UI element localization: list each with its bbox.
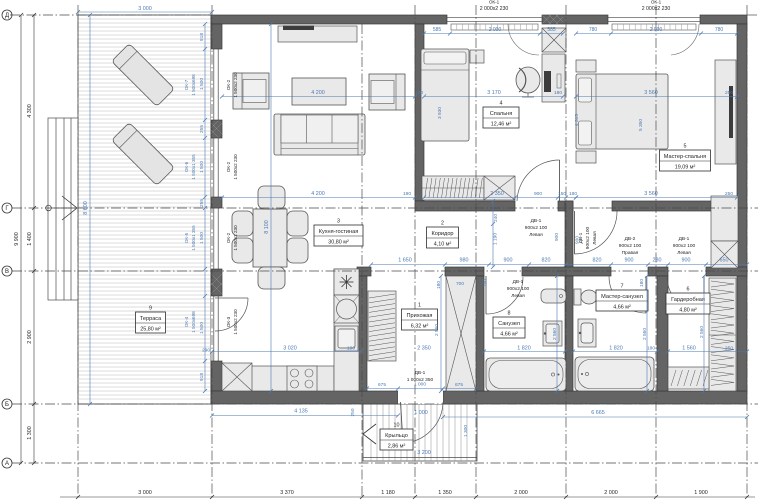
svg-text:7: 7 xyxy=(621,284,624,290)
svg-text:ДВ-1: ДВ-1 xyxy=(531,218,542,224)
svg-text:Левая: Левая xyxy=(592,231,598,245)
svg-text:3 000: 3 000 xyxy=(138,490,152,496)
svg-text:Коридор: Коридор xyxy=(431,231,453,237)
svg-text:1 500х698: 1 500х698 xyxy=(191,311,196,333)
svg-text:4 315: 4 315 xyxy=(574,114,580,126)
svg-text:1 650: 1 650 xyxy=(398,258,412,264)
svg-text:ОК-3: ОК-3 xyxy=(226,316,231,327)
svg-text:1 500: 1 500 xyxy=(199,78,205,90)
svg-text:820: 820 xyxy=(542,258,551,264)
svg-text:9: 9 xyxy=(149,306,152,312)
svg-text:255: 255 xyxy=(199,199,205,207)
svg-text:Правая: Правая xyxy=(622,250,639,256)
svg-text:1 820: 1 820 xyxy=(517,346,531,352)
svg-text:2 000: 2 000 xyxy=(514,490,528,496)
svg-text:1 900: 1 900 xyxy=(694,490,708,496)
svg-text:2 000х2 230: 2 000х2 230 xyxy=(642,6,671,12)
svg-text:3 560: 3 560 xyxy=(644,90,658,96)
svg-text:1 000х2 350: 1 000х2 350 xyxy=(407,377,434,383)
svg-text:1 350: 1 350 xyxy=(438,490,452,496)
svg-text:6: 6 xyxy=(687,287,690,293)
svg-text:2 560: 2 560 xyxy=(434,324,440,336)
svg-text:4 200: 4 200 xyxy=(311,90,325,96)
svg-text:2,86 м²: 2,86 м² xyxy=(388,444,406,450)
svg-text:1 500: 1 500 xyxy=(199,161,205,173)
svg-text:3 930: 3 930 xyxy=(437,107,443,119)
svg-text:1 500х1 355: 1 500х1 355 xyxy=(191,225,196,251)
svg-text:3 020: 3 020 xyxy=(283,346,297,352)
svg-text:900: 900 xyxy=(625,258,634,264)
svg-text:5 350: 5 350 xyxy=(638,119,644,131)
svg-text:ДВ-2: ДВ-2 xyxy=(625,236,636,242)
svg-text:4,66 м²: 4,66 м² xyxy=(613,305,631,311)
svg-text:12,46 м²: 12,46 м² xyxy=(491,122,512,128)
svg-text:ОК-6: ОК-6 xyxy=(184,161,189,172)
svg-text:1 300: 1 300 xyxy=(463,425,469,437)
svg-text:ДВ-1: ДВ-1 xyxy=(513,279,524,285)
svg-text:4: 4 xyxy=(500,101,503,107)
svg-text:2 560: 2 560 xyxy=(552,328,558,340)
svg-text:Крыльцо: Крыльцо xyxy=(385,433,408,439)
svg-text:1 400: 1 400 xyxy=(27,232,33,246)
svg-text:4,80 м²: 4,80 м² xyxy=(679,308,697,314)
svg-text:190: 190 xyxy=(403,191,411,197)
svg-text:3 200: 3 200 xyxy=(417,450,431,456)
svg-text:2 000х2 230: 2 000х2 230 xyxy=(480,6,509,12)
svg-text:Мастер-санузел: Мастер-санузел xyxy=(601,294,643,300)
svg-text:2 350: 2 350 xyxy=(490,191,504,197)
svg-text:Мастер-спальня: Мастер-спальня xyxy=(664,154,706,160)
svg-text:1 500х2 230: 1 500х2 230 xyxy=(233,225,238,251)
svg-text:4,66 м²: 4,66 м² xyxy=(500,332,518,338)
svg-text:6,32 м²: 6,32 м² xyxy=(411,324,429,330)
svg-text:150: 150 xyxy=(558,191,566,197)
svg-text:Кухня-гостиная: Кухня-гостиная xyxy=(319,229,359,235)
svg-text:ОК-2: ОК-2 xyxy=(226,232,231,243)
svg-text:820: 820 xyxy=(593,258,602,264)
svg-text:Левая: Левая xyxy=(511,293,525,299)
svg-text:180: 180 xyxy=(554,90,562,96)
svg-text:25,80 м²: 25,80 м² xyxy=(140,327,161,333)
svg-text:2 000: 2 000 xyxy=(650,27,663,33)
svg-text:180: 180 xyxy=(482,279,488,287)
svg-text:ОК-5: ОК-5 xyxy=(184,232,189,243)
svg-text:ДВ-1: ДВ-1 xyxy=(679,236,690,242)
svg-text:650: 650 xyxy=(720,258,729,264)
svg-text:ОК-1: ОК-1 xyxy=(651,0,662,5)
svg-text:Терраса: Терраса xyxy=(140,316,162,322)
svg-text:190: 190 xyxy=(347,346,355,352)
svg-text:3: 3 xyxy=(337,219,340,225)
svg-text:2: 2 xyxy=(441,221,444,227)
svg-text:19,09 м²: 19,09 м² xyxy=(675,165,696,171)
svg-text:250: 250 xyxy=(725,90,733,96)
svg-text:1: 1 xyxy=(418,303,421,309)
svg-text:900х2 100: 900х2 100 xyxy=(673,243,696,249)
svg-text:ОК-2: ОК-2 xyxy=(226,161,231,172)
svg-text:1 500х698: 1 500х698 xyxy=(191,74,196,96)
svg-text:В: В xyxy=(5,269,9,275)
svg-text:4,10 м²: 4,10 м² xyxy=(434,242,452,248)
svg-text:ОК-7: ОК-7 xyxy=(184,79,189,90)
svg-text:780: 780 xyxy=(589,27,598,33)
svg-text:585: 585 xyxy=(433,27,442,33)
svg-text:900: 900 xyxy=(504,258,513,264)
svg-text:30,80 м²: 30,80 м² xyxy=(328,240,349,246)
svg-text:1 180: 1 180 xyxy=(381,490,395,496)
svg-text:2 350: 2 350 xyxy=(417,346,431,352)
svg-text:Б: Б xyxy=(5,402,9,408)
svg-text:250: 250 xyxy=(725,191,733,197)
svg-text:ОК-1: ОК-1 xyxy=(489,0,500,5)
svg-text:900: 900 xyxy=(534,191,542,197)
svg-text:1 000: 1 000 xyxy=(414,410,428,416)
svg-text:290: 290 xyxy=(202,348,210,354)
svg-text:585: 585 xyxy=(547,27,556,33)
svg-text:250: 250 xyxy=(350,408,356,416)
svg-text:980: 980 xyxy=(460,258,469,264)
svg-text:675: 675 xyxy=(455,382,463,388)
svg-text:1 500: 1 500 xyxy=(199,322,205,334)
svg-text:ДВ-1: ДВ-1 xyxy=(415,370,426,376)
svg-text:900х2 100: 900х2 100 xyxy=(619,243,642,249)
svg-text:3 370: 3 370 xyxy=(280,490,294,496)
svg-text:4 135: 4 135 xyxy=(294,409,308,415)
svg-text:1 300: 1 300 xyxy=(27,426,33,440)
svg-text:4 200: 4 200 xyxy=(311,191,325,197)
svg-text:Д: Д xyxy=(5,13,9,19)
svg-text:5: 5 xyxy=(684,144,687,150)
svg-text:2 900: 2 900 xyxy=(27,330,33,344)
svg-text:Санузел: Санузел xyxy=(498,321,520,327)
svg-text:180: 180 xyxy=(569,191,577,197)
svg-text:1 500х2 230: 1 500х2 230 xyxy=(233,309,238,335)
svg-text:ОК-2: ОК-2 xyxy=(226,79,231,90)
svg-text:190: 190 xyxy=(415,90,423,96)
svg-text:918: 918 xyxy=(199,373,205,381)
svg-text:900х2 100: 900х2 100 xyxy=(525,225,548,231)
svg-text:280: 280 xyxy=(653,258,662,264)
svg-text:1 500х2 230: 1 500х2 230 xyxy=(233,154,238,180)
svg-text:675: 675 xyxy=(378,382,386,388)
svg-text:А: А xyxy=(5,461,9,467)
svg-text:240: 240 xyxy=(493,214,499,222)
svg-text:8: 8 xyxy=(508,311,511,317)
svg-text:3 560: 3 560 xyxy=(644,191,658,197)
svg-text:ОК-4: ОК-4 xyxy=(184,316,189,327)
svg-text:1 500: 1 500 xyxy=(199,232,205,244)
svg-text:3 170: 3 170 xyxy=(487,90,501,96)
svg-text:180: 180 xyxy=(639,279,645,287)
svg-text:4 300: 4 300 xyxy=(27,104,33,118)
svg-text:3 000: 3 000 xyxy=(138,6,152,12)
svg-text:1 820: 1 820 xyxy=(609,346,623,352)
svg-text:1 500х2 230: 1 500х2 230 xyxy=(233,72,238,98)
svg-text:1 190: 1 190 xyxy=(493,233,499,245)
svg-text:8 600: 8 600 xyxy=(83,201,89,215)
svg-text:1 500х1 355: 1 500х1 355 xyxy=(191,154,196,180)
svg-text:Левая: Левая xyxy=(529,232,543,238)
svg-text:180: 180 xyxy=(436,281,442,289)
svg-text:780: 780 xyxy=(715,27,724,33)
svg-text:Левая: Левая xyxy=(677,250,691,256)
svg-text:ДВ-1: ДВ-1 xyxy=(578,232,584,243)
svg-text:900: 900 xyxy=(682,258,691,264)
svg-text:Спальня: Спальня xyxy=(490,111,512,117)
svg-text:2 000: 2 000 xyxy=(604,490,618,496)
svg-text:10: 10 xyxy=(394,423,400,429)
svg-text:180: 180 xyxy=(647,346,655,352)
svg-text:9 900: 9 900 xyxy=(14,232,20,246)
svg-text:2 560: 2 560 xyxy=(642,328,648,340)
svg-text:900х2 100: 900х2 100 xyxy=(507,286,530,292)
svg-text:6 665: 6 665 xyxy=(591,410,605,416)
svg-text:900: 900 xyxy=(554,233,560,241)
svg-text:Гардеробная: Гардеробная xyxy=(671,297,705,303)
svg-text:1 560: 1 560 xyxy=(682,346,696,352)
svg-text:Прихожая: Прихожая xyxy=(407,313,433,319)
svg-text:8 100: 8 100 xyxy=(264,220,270,234)
svg-text:918: 918 xyxy=(199,33,205,41)
svg-text:250: 250 xyxy=(725,346,733,352)
svg-text:2 560: 2 560 xyxy=(699,326,705,338)
svg-text:900х2 100: 900х2 100 xyxy=(585,226,591,249)
svg-text:2 000: 2 000 xyxy=(489,27,502,33)
svg-text:255: 255 xyxy=(199,125,205,133)
svg-text:700: 700 xyxy=(456,281,464,287)
